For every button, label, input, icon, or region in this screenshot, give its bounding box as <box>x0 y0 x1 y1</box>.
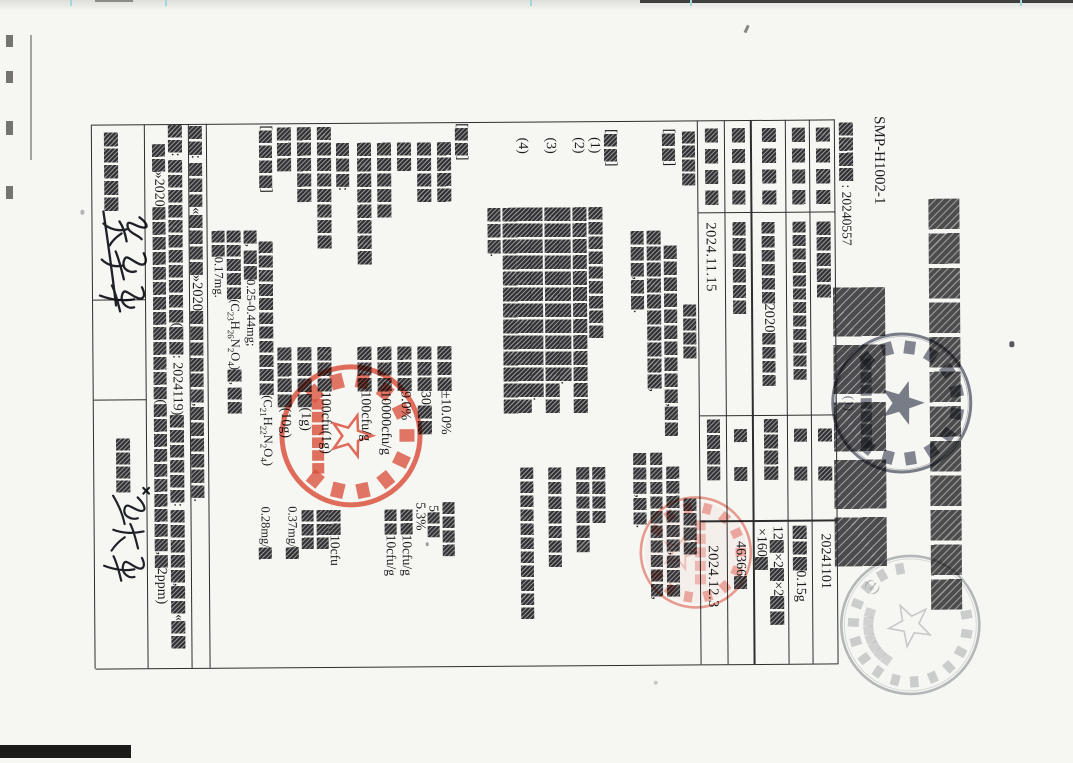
svg-text:(1): (1) <box>842 396 857 411</box>
